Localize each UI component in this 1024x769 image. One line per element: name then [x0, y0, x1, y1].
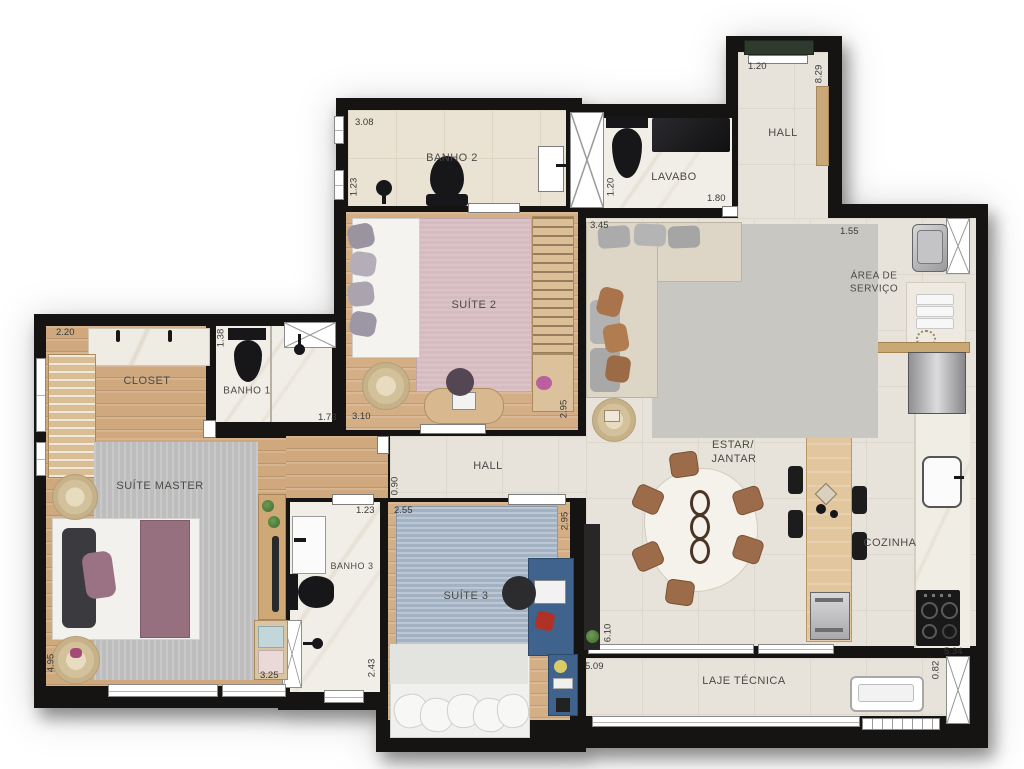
room-label-banho1: BANHO 1 [223, 386, 270, 397]
banho3-sink [292, 516, 326, 574]
dining-chair [664, 578, 695, 607]
dim-suite2-bottom: 3.10 [352, 411, 371, 422]
dim-estar-top: 3.45 [590, 220, 609, 231]
cooktop-burner [922, 624, 937, 639]
cooktop-burner [941, 602, 958, 619]
laundry-sink-basin [917, 230, 943, 264]
dim-laje-right: 0.82 [931, 661, 942, 680]
window [36, 358, 46, 432]
window [592, 716, 860, 727]
ventilation-shaft [946, 656, 970, 724]
towel-stack [916, 306, 954, 317]
pedestal-sink-stem [382, 194, 386, 204]
faucet [116, 330, 120, 342]
room-label-hall: HALL [473, 460, 503, 472]
room-label-laje: LAJE TÉCNICA [702, 675, 785, 687]
hall-corridor-door [377, 436, 389, 454]
dim-suite3-top: 2.55 [394, 505, 413, 516]
bed-pillow [348, 310, 378, 338]
shower-divider [270, 326, 272, 422]
closet-wardrobe [48, 354, 96, 478]
plant [586, 630, 599, 643]
shelf-decor [554, 660, 567, 673]
floor-plan: BANHO 2 LAVABO HALL ÁREA DE SERVIÇO SUÍT… [0, 0, 1024, 769]
toilet-tank [426, 194, 468, 206]
dim-master-left: 4.95 [46, 654, 57, 673]
bar-stool [852, 486, 867, 514]
sofa-back-cushion [633, 223, 666, 247]
dim-hall-left: 0.90 [390, 477, 401, 496]
room-label-banho3: BANHO 3 [330, 561, 373, 571]
towel-stack [916, 318, 954, 329]
dim-lavabo-left: 1.20 [606, 178, 617, 197]
sofa-throw-pillow [602, 322, 630, 354]
dim-suite2-right: 2.95 [559, 400, 570, 419]
floor-plan-canvas: BANHO 2 LAVABO HALL ÁREA DE SERVIÇO SUÍT… [0, 0, 1024, 769]
corridor-floor [286, 436, 388, 498]
room-label-suite-master: SUÍTE MASTER [116, 480, 203, 492]
nightstand [52, 636, 100, 684]
suite2-desk-chair [446, 368, 474, 396]
towel-stack [916, 294, 954, 305]
louver-vent [862, 718, 940, 730]
table-runner [690, 490, 710, 516]
bar-stool [788, 466, 803, 494]
suite2-door [420, 424, 486, 434]
ventilation-shaft [946, 218, 970, 274]
window [334, 116, 344, 144]
toilet-tank [606, 116, 648, 128]
nightstand-decor [70, 648, 82, 658]
lavabo-opening [722, 206, 738, 217]
monitor [534, 580, 566, 604]
entrance-doormat [744, 40, 814, 55]
window [334, 170, 344, 200]
fridge [908, 352, 966, 414]
dishwasher-handle [815, 628, 843, 632]
room-label-suite3: SUÍTE 3 [443, 590, 488, 602]
shower-arm [298, 334, 301, 346]
suite2-pouf [362, 362, 410, 410]
kitchen-faucet [954, 476, 964, 479]
room-label-cozinha: COZINHA [864, 537, 917, 549]
dim-hall-entry-top: 1.20 [748, 61, 767, 72]
toilet-tank [228, 328, 266, 340]
room-label-closet: CLOSET [123, 375, 170, 387]
dim-banho2-top: 3.08 [355, 117, 374, 128]
toilet [298, 576, 334, 608]
faucet [294, 538, 306, 542]
kitchen-sink [922, 456, 962, 508]
table-runner [690, 538, 710, 564]
island-decor-plate [830, 510, 838, 518]
closet-vanity [88, 328, 210, 366]
bed-pillow [348, 250, 377, 277]
ventilation-shaft [284, 322, 336, 348]
room-label-estar-line1: ESTAR/ [712, 439, 754, 451]
sofa-back-cushion [668, 225, 701, 248]
room-label-hall-entry: HALL [768, 127, 798, 139]
dim-area-servico-top: 1.55 [840, 226, 859, 237]
door-handle [556, 164, 566, 167]
room-label-area-servico-line2: SERVIÇO [850, 284, 898, 295]
suite3-blanket [390, 644, 528, 684]
nightstand [52, 474, 98, 520]
dim-banho1-bottom: 1.73 [318, 412, 337, 423]
side-table-decor [604, 410, 620, 422]
hall-console [816, 86, 829, 166]
bed-pillow [347, 281, 375, 308]
window-sliding-door [588, 644, 754, 654]
ventilation-shaft [570, 112, 604, 208]
dim-banho2-left: 1.23 [349, 178, 360, 197]
shelf-decor [553, 678, 573, 689]
cooktop-burner [942, 624, 957, 639]
bed-pillow-mauve [81, 550, 117, 600]
condenser-unit-grille [858, 684, 914, 702]
shower-arm [303, 642, 314, 645]
dim-closet-top: 2.20 [56, 327, 75, 338]
room-label-estar-line2: JANTAR [712, 453, 757, 465]
banho2-opening [468, 203, 520, 213]
dim-hall-entry-right: 8.29 [814, 65, 825, 84]
island-decor-plate [816, 504, 826, 514]
dishwasher-handle [815, 598, 843, 602]
shelf-item [556, 698, 570, 712]
room-label-suite2: SUÍTE 2 [451, 299, 496, 311]
suite2-dresser-stool [536, 376, 552, 390]
cooktop-burner [921, 602, 938, 619]
window [108, 684, 218, 697]
cabinet-drawer [258, 626, 284, 648]
plant [262, 500, 274, 512]
banho3-door [332, 494, 374, 505]
vanity-counter [652, 118, 730, 152]
toilet-tank [288, 574, 298, 610]
window [36, 442, 46, 476]
dim-banho3-right: 2.43 [367, 659, 378, 678]
dining-chair [668, 450, 699, 479]
dim-laje-left: 5.09 [585, 661, 604, 672]
sofa-throw-pillow [604, 354, 631, 383]
dim-lavabo-bottom: 1.80 [707, 193, 726, 204]
console-runner [272, 536, 279, 612]
banho1-door [203, 420, 216, 438]
dim-banho3-top: 1.23 [356, 505, 375, 516]
dim-master-bottom: 3.25 [260, 670, 279, 681]
table-runner [690, 514, 710, 540]
suite3-door [508, 494, 566, 505]
suite2-wardrobe [532, 216, 574, 354]
room-label-banho2: BANHO 2 [426, 152, 478, 164]
window-sliding-door [758, 644, 834, 654]
dim-cozinha-bottom: 5.34 [944, 646, 963, 657]
room-label-lavabo: LAVABO [651, 171, 696, 183]
desk-chair [502, 576, 536, 610]
window [324, 690, 364, 703]
dim-banho1-left: 1.38 [216, 329, 227, 348]
bed-throw [140, 520, 190, 638]
dim-suite3-right: 2.95 [560, 512, 571, 531]
red-chair [534, 610, 555, 631]
cooktop-knobs [924, 594, 954, 597]
faucet [168, 330, 172, 342]
banho2-door [538, 146, 564, 192]
dim-estar-left: 6.10 [603, 624, 614, 643]
window [222, 684, 286, 697]
bar-stool [788, 510, 803, 538]
plant [268, 516, 280, 528]
room-label-area-servico-line1: ÁREA DE [851, 271, 898, 282]
suite3-desk [528, 558, 574, 656]
